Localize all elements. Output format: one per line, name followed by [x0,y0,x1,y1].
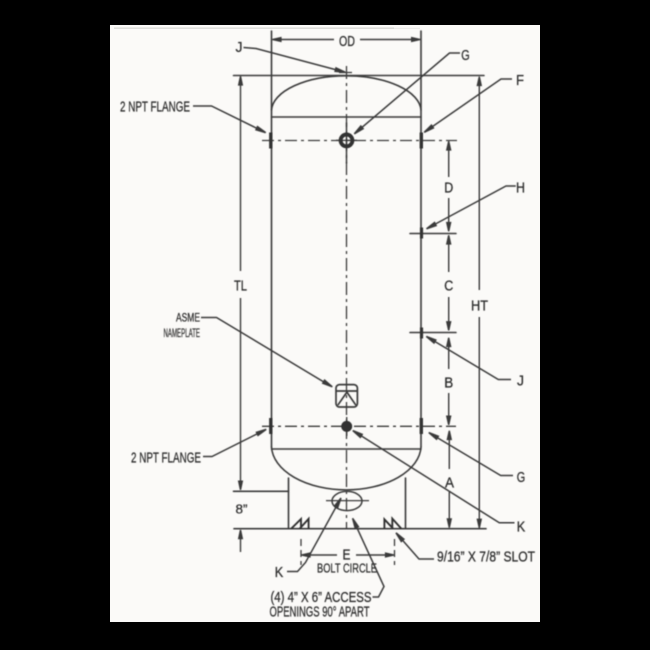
svg-text:H: H [516,181,525,197]
svg-text:TL: TL [234,279,247,295]
svg-text:B: B [444,376,453,392]
svg-text:K: K [275,565,284,581]
svg-text:8”: 8” [236,502,248,517]
svg-text:9/16” X 7/8” SLOT: 9/16” X 7/8” SLOT [437,549,535,566]
svg-text:NAMEPLATE: NAMEPLATE [164,326,201,340]
svg-text:A: A [445,476,454,492]
svg-text:G: G [517,470,526,486]
svg-text:2 NPT FLANGE: 2 NPT FLANGE [131,450,201,467]
svg-text:HT: HT [471,299,488,315]
svg-text:G: G [461,48,470,64]
svg-text:ASME: ASME [176,311,200,325]
svg-text:C: C [444,279,453,295]
svg-text:BOLT CIRCLE: BOLT CIRCLE [317,561,377,576]
svg-text:OPENINGS 90° APART: OPENINGS 90° APART [270,605,370,621]
svg-text:K: K [517,520,526,536]
svg-text:J: J [236,40,243,56]
svg-text:F: F [516,73,524,89]
svg-text:J: J [517,374,524,390]
svg-text:OD: OD [339,34,355,50]
svg-text:D: D [444,181,453,197]
svg-text:2 NPT FLANGE: 2 NPT FLANGE [120,99,190,116]
